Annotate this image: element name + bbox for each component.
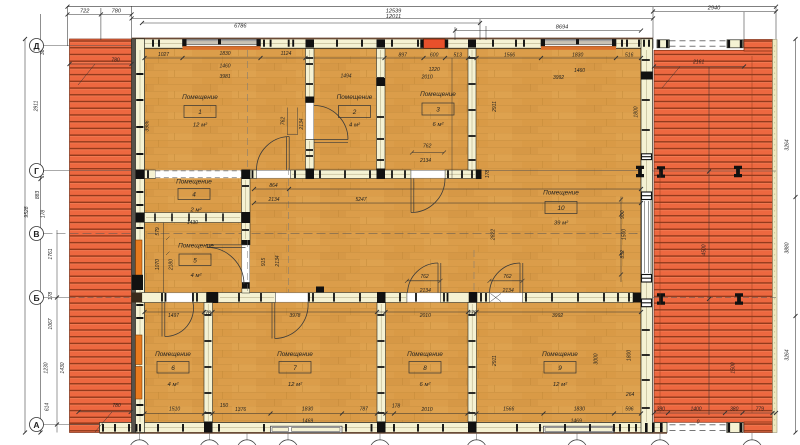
svg-text:6: 6 <box>171 365 175 372</box>
svg-text:1230: 1230 <box>44 362 50 373</box>
svg-text:2134: 2134 <box>502 288 514 294</box>
svg-text:Помещение: Помещение <box>337 94 373 101</box>
svg-text:864: 864 <box>269 183 278 189</box>
svg-text:4 м²: 4 м² <box>349 123 361 129</box>
svg-text:1500: 1500 <box>622 229 628 240</box>
svg-text:3264: 3264 <box>785 349 791 360</box>
svg-text:2134: 2134 <box>419 158 431 164</box>
svg-text:1500: 1500 <box>731 362 737 373</box>
svg-text:380: 380 <box>730 407 739 413</box>
svg-text:2 м²: 2 м² <box>190 208 203 214</box>
svg-text:1: 1 <box>198 109 202 116</box>
svg-text:6786: 6786 <box>234 23 247 29</box>
svg-text:787: 787 <box>360 407 369 413</box>
svg-text:2822: 2822 <box>491 229 497 241</box>
svg-text:В: В <box>33 229 39 239</box>
svg-text:2134: 2134 <box>299 118 305 130</box>
svg-text:1376: 1376 <box>235 407 246 413</box>
svg-text:3880: 3880 <box>785 242 791 253</box>
svg-text:780: 780 <box>112 9 122 15</box>
svg-text:178: 178 <box>468 311 477 317</box>
svg-text:1830: 1830 <box>219 51 230 57</box>
svg-text:Помещение: Помещение <box>182 94 218 101</box>
svg-text:0: 0 <box>697 420 700 426</box>
svg-text:10: 10 <box>557 205 565 212</box>
svg-text:8694: 8694 <box>556 25 568 31</box>
svg-text:1510: 1510 <box>169 407 180 413</box>
svg-text:2: 2 <box>352 109 357 116</box>
svg-text:1830: 1830 <box>574 407 585 413</box>
svg-text:150: 150 <box>220 403 229 409</box>
svg-text:1430: 1430 <box>187 220 198 226</box>
svg-text:12 м²: 12 м² <box>193 123 208 129</box>
svg-text:1494: 1494 <box>340 74 351 80</box>
svg-text:722: 722 <box>80 9 90 15</box>
svg-text:2010: 2010 <box>419 313 431 319</box>
svg-text:513: 513 <box>454 53 463 59</box>
svg-text:Помещение: Помещение <box>542 351 578 358</box>
svg-text:516: 516 <box>625 53 634 59</box>
svg-text:600: 600 <box>430 53 439 59</box>
svg-text:Помещение: Помещение <box>420 91 456 98</box>
svg-text:9528: 9528 <box>24 206 30 217</box>
svg-text:1830: 1830 <box>302 407 313 413</box>
svg-text:779: 779 <box>756 407 765 413</box>
svg-text:3000: 3000 <box>594 353 600 364</box>
svg-text:762: 762 <box>420 274 429 280</box>
svg-text:915: 915 <box>261 258 267 267</box>
svg-text:12 м²: 12 м² <box>553 382 568 388</box>
svg-text:1220: 1220 <box>429 67 440 73</box>
svg-text:178: 178 <box>485 170 491 179</box>
svg-text:1800: 1800 <box>627 350 633 361</box>
svg-text:3992: 3992 <box>553 75 564 81</box>
svg-text:2134: 2134 <box>275 255 281 267</box>
svg-text:Помещение: Помещение <box>176 179 212 186</box>
svg-text:12 м²: 12 м² <box>288 382 303 388</box>
svg-text:39 м²: 39 м² <box>554 221 569 227</box>
svg-text:380: 380 <box>657 407 666 413</box>
svg-text:2010: 2010 <box>421 75 433 81</box>
svg-text:780: 780 <box>111 58 120 64</box>
svg-text:883: 883 <box>35 191 41 200</box>
svg-text:Помещение: Помещение <box>155 351 191 358</box>
svg-text:Б: Б <box>33 293 39 303</box>
svg-text:2134: 2134 <box>419 288 431 294</box>
svg-text:9: 9 <box>558 365 562 372</box>
svg-text:2940: 2940 <box>707 6 721 12</box>
svg-text:12011: 12011 <box>386 14 401 20</box>
svg-text:1430: 1430 <box>60 362 66 373</box>
svg-text:1566: 1566 <box>504 53 515 59</box>
svg-text:2911: 2911 <box>34 100 40 112</box>
svg-text:178: 178 <box>41 210 47 219</box>
svg-text:1566: 1566 <box>503 407 514 413</box>
svg-text:3992: 3992 <box>552 313 563 319</box>
svg-text:6 м²: 6 м² <box>420 382 432 388</box>
svg-text:1124: 1124 <box>281 51 292 57</box>
svg-text:4 м²: 4 м² <box>168 382 180 388</box>
svg-text:1497: 1497 <box>168 313 179 319</box>
svg-text:1800: 1800 <box>634 106 640 117</box>
svg-text:178: 178 <box>392 404 401 410</box>
svg-text:614: 614 <box>44 403 50 412</box>
svg-text:178: 178 <box>48 292 54 301</box>
svg-text:3264: 3264 <box>785 139 791 150</box>
svg-text:1830: 1830 <box>572 53 583 59</box>
svg-text:5: 5 <box>193 258 197 265</box>
svg-text:762: 762 <box>280 117 286 126</box>
svg-text:1460: 1460 <box>574 68 585 74</box>
svg-text:762: 762 <box>423 144 432 150</box>
svg-text:780: 780 <box>112 403 121 409</box>
svg-text:3981: 3981 <box>219 74 230 80</box>
svg-text:897: 897 <box>399 53 408 59</box>
svg-text:Помещение: Помещение <box>277 351 313 358</box>
svg-text:Помещение: Помещение <box>543 190 579 197</box>
svg-text:6 м²: 6 м² <box>433 122 445 128</box>
svg-text:А: А <box>33 420 39 430</box>
svg-text:2161: 2161 <box>692 60 704 66</box>
svg-text:3986: 3986 <box>145 120 151 131</box>
svg-text:1460: 1460 <box>219 64 230 70</box>
svg-text:579: 579 <box>155 227 161 236</box>
svg-text:1070: 1070 <box>155 259 161 270</box>
svg-text:1469: 1469 <box>302 419 313 425</box>
svg-text:2911: 2911 <box>492 355 498 367</box>
svg-text:2180: 2180 <box>169 259 175 271</box>
svg-text:762: 762 <box>503 274 512 280</box>
svg-text:Помещение: Помещение <box>178 243 214 250</box>
svg-text:596: 596 <box>625 407 634 413</box>
svg-text:264: 264 <box>625 392 635 398</box>
svg-text:4: 4 <box>192 192 196 199</box>
svg-text:1027: 1027 <box>158 52 169 58</box>
svg-text:4500: 4500 <box>702 244 708 255</box>
svg-text:8: 8 <box>423 365 427 372</box>
svg-text:5247: 5247 <box>355 197 366 203</box>
svg-text:3: 3 <box>436 107 440 114</box>
svg-text:4 м²: 4 м² <box>191 273 203 279</box>
svg-text:Д: Д <box>33 41 39 51</box>
svg-text:2010: 2010 <box>421 407 433 413</box>
svg-text:3978: 3978 <box>289 313 300 319</box>
svg-text:Г: Г <box>34 166 39 176</box>
svg-text:7: 7 <box>293 365 297 372</box>
svg-text:1761: 1761 <box>48 248 54 259</box>
svg-text:1067: 1067 <box>48 318 54 329</box>
svg-text:1469: 1469 <box>571 419 582 425</box>
svg-text:Помещение: Помещение <box>407 351 443 358</box>
svg-text:1400: 1400 <box>690 407 701 413</box>
svg-text:2911: 2911 <box>492 101 498 113</box>
svg-text:178: 178 <box>203 311 212 317</box>
svg-text:2134: 2134 <box>267 197 279 203</box>
